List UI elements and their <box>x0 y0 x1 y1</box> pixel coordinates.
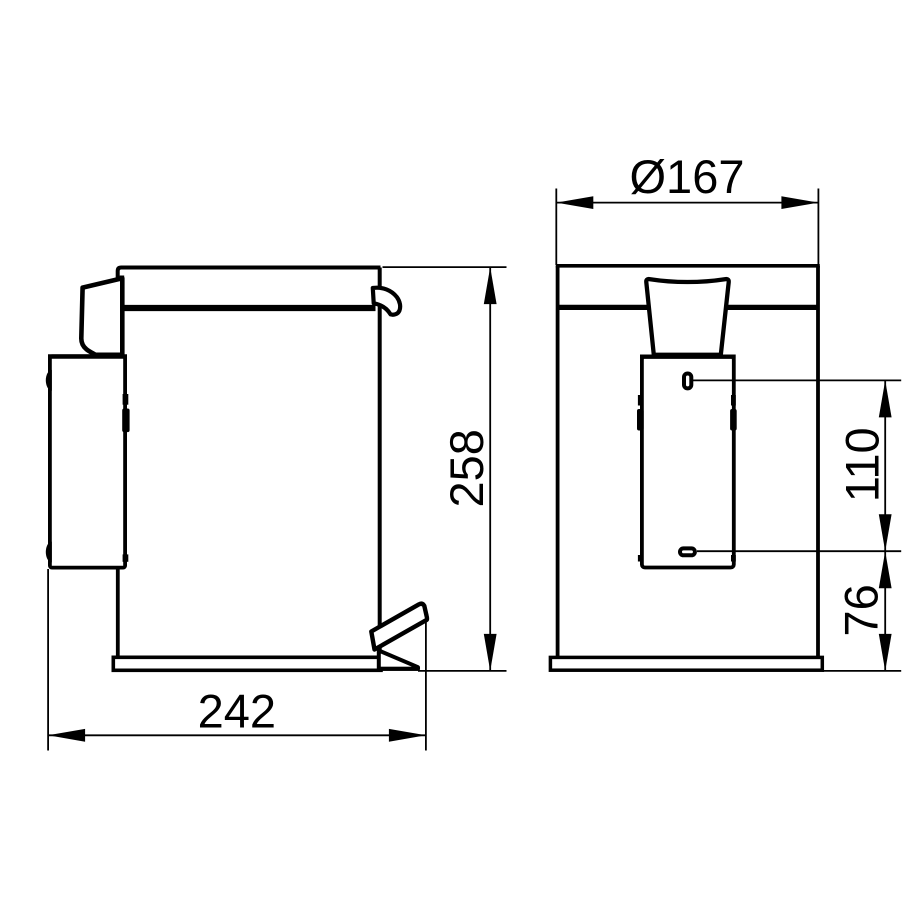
svg-text:242: 242 <box>198 685 276 738</box>
svg-text:Ø167: Ø167 <box>630 150 745 203</box>
svg-text:258: 258 <box>440 429 493 507</box>
svg-text:110: 110 <box>835 427 888 502</box>
svg-text:76: 76 <box>835 584 888 636</box>
